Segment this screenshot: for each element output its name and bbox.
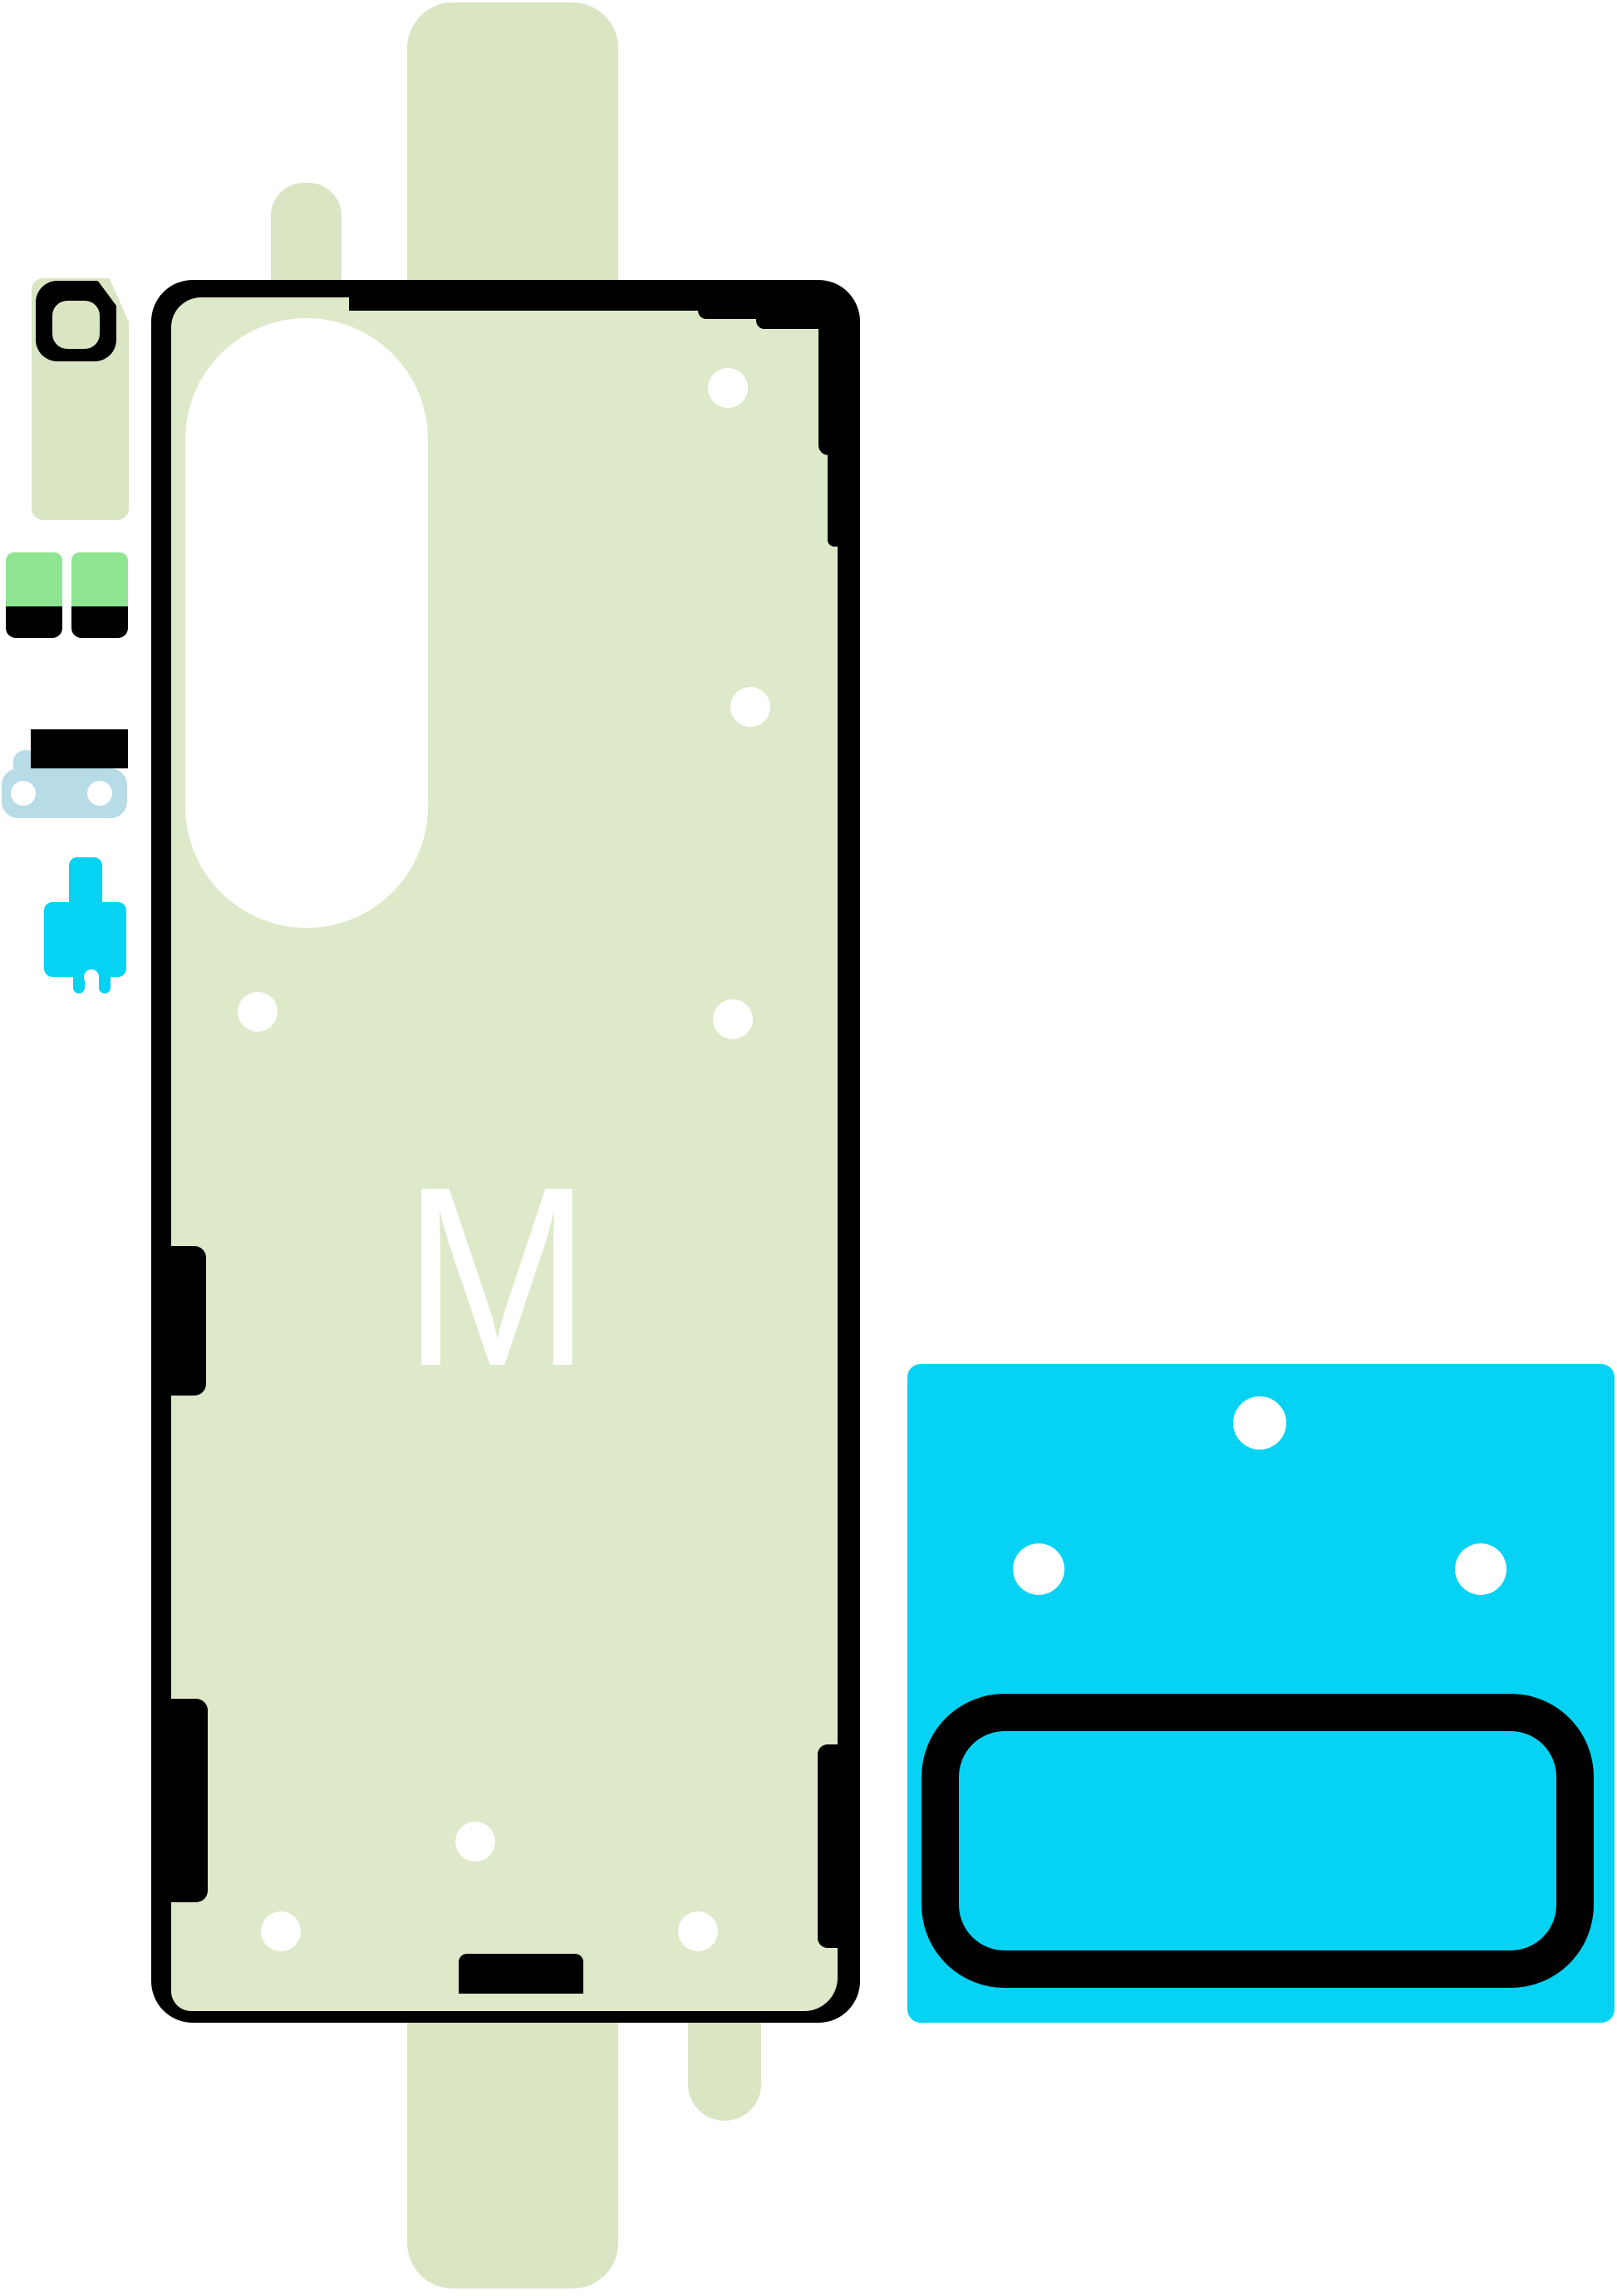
alignment-hole-5 — [455, 1822, 495, 1862]
button-adhesive-leg-1 — [73, 977, 85, 993]
alignment-hole-3 — [238, 992, 278, 1032]
border-notch-bottom — [459, 1954, 583, 1994]
camera-cutout — [185, 318, 428, 928]
adhesive-kit-illustration: M — [0, 0, 1617, 2296]
deco-hole-2 — [1013, 1543, 1064, 1595]
camera-ring-print — [36, 281, 116, 361]
alignment-hole-1 — [708, 368, 748, 408]
sensor-bracket-sticker — [0, 729, 133, 821]
watermark-letter: M — [387, 1144, 607, 1410]
border-step-top-1 — [349, 297, 698, 311]
border-notch-left-2 — [171, 1699, 208, 1902]
camera-deco-adhesive-sheet — [907, 1364, 1615, 2023]
alignment-hole-2 — [730, 687, 770, 727]
border-step-topright-1 — [818, 297, 838, 455]
border-notch-left-1 — [171, 1246, 206, 1396]
side-pad-2 — [71, 552, 128, 638]
camera-ring-opening — [52, 301, 100, 349]
border-notch-right-1 — [818, 1744, 838, 1948]
border-step-topright-2 — [828, 455, 838, 547]
camera-housing-outline — [922, 1694, 1594, 1988]
alignment-hole-6 — [261, 1911, 301, 1951]
deco-hole-3 — [1455, 1543, 1506, 1595]
side-pad-1-black — [6, 606, 62, 638]
alignment-hole-4 — [713, 999, 753, 1039]
side-pad-1 — [6, 552, 62, 638]
side-pad-2-black — [71, 606, 128, 638]
button-adhesive-body — [44, 902, 126, 977]
alignment-hole-7 — [678, 1911, 718, 1951]
side-pad-1-green — [6, 552, 62, 606]
sensor-hole-1 — [11, 781, 36, 806]
sensor-hole-2 — [87, 781, 112, 806]
button-adhesive-tab — [69, 857, 102, 909]
camera-bezel-sticker — [32, 278, 129, 520]
button-adhesive-leg-2 — [99, 977, 111, 993]
deco-hole-1 — [1233, 1396, 1286, 1450]
button-adhesive — [44, 857, 127, 994]
back-cover-adhesive-sheet: M — [151, 280, 860, 2023]
side-pad-2-green — [71, 552, 128, 606]
sensor-bracket-black-bar — [31, 729, 128, 768]
button-adhesive-notch — [84, 969, 99, 984]
